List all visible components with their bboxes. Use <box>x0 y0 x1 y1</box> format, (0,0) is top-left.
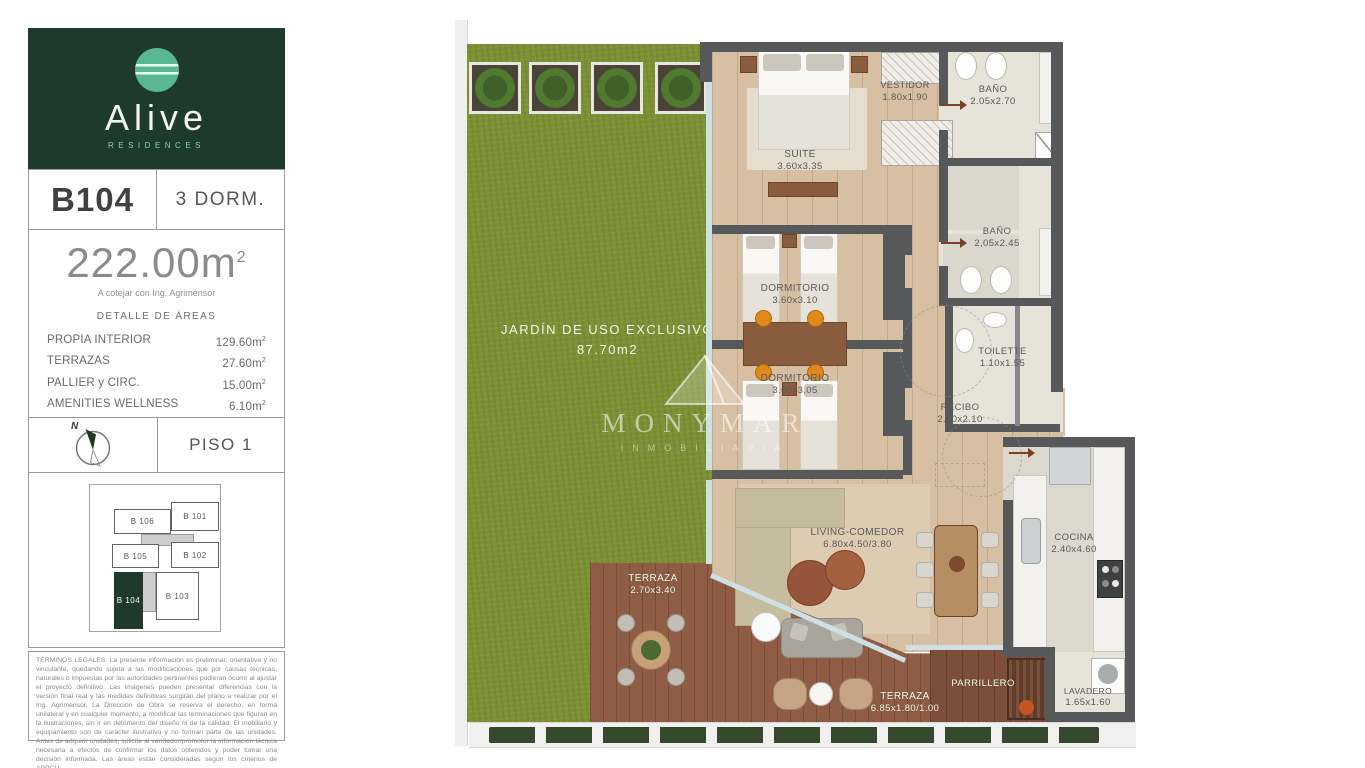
fridge-icon <box>1049 447 1091 485</box>
room-label-recibo: RECIBO2.40x2.10 <box>910 402 1010 427</box>
hedge-strip <box>469 722 1136 748</box>
info-panel: Alive RESIDENCES B104 3 DORM. 222.00m2 A… <box>28 28 285 741</box>
chair-icon <box>617 614 635 632</box>
keyplan-unit-b102: B 102 <box>171 542 219 568</box>
room-label-terraza2: TERRAZA6.85x1.80/1.00 <box>847 690 963 715</box>
shower-floor <box>943 166 1019 230</box>
chair-icon <box>981 592 999 608</box>
nightstand <box>851 56 868 73</box>
room-label-bano1: BAÑO2.05x2.70 <box>947 84 1039 109</box>
brand-tagline: RESIDENCES <box>108 141 205 150</box>
chair-icon <box>807 310 824 327</box>
unit-row: B104 3 DORM. <box>28 169 285 230</box>
area-summary: 222.00m2 A cotejar con Ing. Agrimensor D… <box>28 229 285 418</box>
planter-icon <box>469 62 521 114</box>
chair-icon <box>916 592 934 608</box>
fire-icon <box>1019 700 1034 715</box>
room-label-dorm2: DORMITORIO3.60x3.05 <box>740 372 850 397</box>
hedge-icons <box>489 727 1099 743</box>
wall <box>939 130 948 242</box>
nightstand <box>740 56 757 73</box>
area-note: A cotejar con Ing. Agrimensor <box>29 288 284 298</box>
plant-icon <box>641 640 661 660</box>
room-label-toilette: TOILETTE1.10x1.55 <box>955 346 1050 371</box>
wall <box>700 42 712 82</box>
area-row: TERRAZAS27.60m2 <box>47 352 266 373</box>
washer-door <box>1098 664 1118 684</box>
compass-north-label: N <box>71 421 78 432</box>
wall <box>1003 437 1135 447</box>
wicker-chair <box>773 678 807 710</box>
room-label-dorm1: DORMITORIO3.60x3.10 <box>740 282 850 307</box>
area-row: PALLIER y CIRC.15.00m2 <box>47 374 266 395</box>
keyplan-unit-b101: B 101 <box>171 502 219 531</box>
floor-row: N PISO 1 <box>28 417 285 473</box>
floor-plan: JARDÍN DE USO EXCLUSIVO87.70m2 <box>455 20 1136 748</box>
sofa <box>735 488 845 528</box>
wall <box>939 298 1063 306</box>
door-arrow-icon <box>1009 452 1029 454</box>
keyplan-unit-b106: B 106 <box>114 509 171 534</box>
dresser <box>768 182 838 197</box>
floor-label: PISO 1 <box>157 418 284 472</box>
wall <box>1045 712 1135 722</box>
room-label-vestidor: VESTIDOR1.80x1.90 <box>860 80 950 104</box>
burner <box>1112 566 1119 573</box>
chair-icon <box>667 614 685 632</box>
glass-wall <box>706 52 712 470</box>
pillow <box>746 236 775 249</box>
compass: N <box>29 418 157 472</box>
nightstand <box>782 234 797 248</box>
brand-logo-icon <box>135 48 179 92</box>
stove-icon <box>1097 560 1123 598</box>
chair-icon <box>667 668 685 686</box>
keyplan-unit-b104-highlighted: B 104 <box>114 572 143 629</box>
area-row: AMENITIES WELLNESS6.10m2 <box>47 395 266 416</box>
wall <box>1051 42 1063 392</box>
wall <box>939 158 1063 166</box>
brand-name: Alive <box>105 100 208 136</box>
legal-terms: TÉRMINOS LEGALES: La presente informació… <box>28 651 285 741</box>
pouf <box>825 550 865 590</box>
wall <box>700 42 1063 52</box>
pillow <box>763 54 801 71</box>
side-table <box>751 612 781 642</box>
wall <box>712 470 903 479</box>
glass-wall <box>906 645 1003 650</box>
garden-label: JARDÍN DE USO EXCLUSIVO87.70m2 <box>495 320 720 359</box>
planter-icon <box>591 62 643 114</box>
chair-icon <box>916 562 934 578</box>
keyplan-core <box>142 572 156 612</box>
unit-type: 3 DORM. <box>176 189 266 211</box>
chair-icon <box>981 532 999 548</box>
floorplan-sheet: Alive RESIDENCES B104 3 DORM. 222.00m2 A… <box>0 0 1365 768</box>
chair-icon <box>981 562 999 578</box>
wall <box>712 225 903 234</box>
burner <box>1102 580 1109 587</box>
sink-icon <box>955 52 977 80</box>
room-label-terraza1: TERRAZA2.70x3.40 <box>603 572 703 597</box>
planter-icon <box>529 62 581 114</box>
burner <box>1102 566 1109 573</box>
total-area: 222.00m2 <box>29 242 284 284</box>
brand-header: Alive RESIDENCES <box>28 28 285 170</box>
room-label-cocina: COCINA2.40x4.60 <box>1033 532 1115 557</box>
side-table <box>809 682 833 706</box>
desk <box>743 322 847 366</box>
sink-icon <box>960 266 982 294</box>
room-label-bano2: BAÑO2,05x2.45 <box>949 226 1045 251</box>
room-label-lavadero: LAVADERO1.65x1.60 <box>1047 686 1129 709</box>
room-label-suite: SUITE3.60x3.35 <box>745 148 855 173</box>
wardrobe-block <box>883 232 905 320</box>
keyplan-unit-b105: B 105 <box>112 544 159 568</box>
wall <box>1003 500 1013 655</box>
area-detail-title: DETALLE DE ÁREAS <box>29 311 284 322</box>
keyplan-unit-b103: B 103 <box>156 572 199 620</box>
glass-wall <box>706 480 712 564</box>
chair-icon <box>755 310 772 327</box>
sink-icon <box>985 52 1007 80</box>
sink-icon <box>990 266 1012 294</box>
unit-code: B104 <box>51 181 134 219</box>
basin-icon <box>983 312 1007 328</box>
guide-circle <box>942 417 1022 497</box>
centerpiece <box>949 556 965 572</box>
chair-icon <box>617 668 635 686</box>
wall <box>1125 437 1135 722</box>
burner <box>1112 580 1119 587</box>
room-label-parrillero: PARRILLERO <box>933 678 1033 690</box>
key-plan: B 106 B 101 B 105 B 102 B 104 B 103 <box>28 472 285 648</box>
room-label-living: LIVING-COMEDOR6.80x4.50/3.80 <box>790 526 925 551</box>
pillow <box>804 236 833 249</box>
area-row: PROPIA INTERIOR129.60m2 <box>47 331 266 352</box>
pillow <box>806 54 844 71</box>
